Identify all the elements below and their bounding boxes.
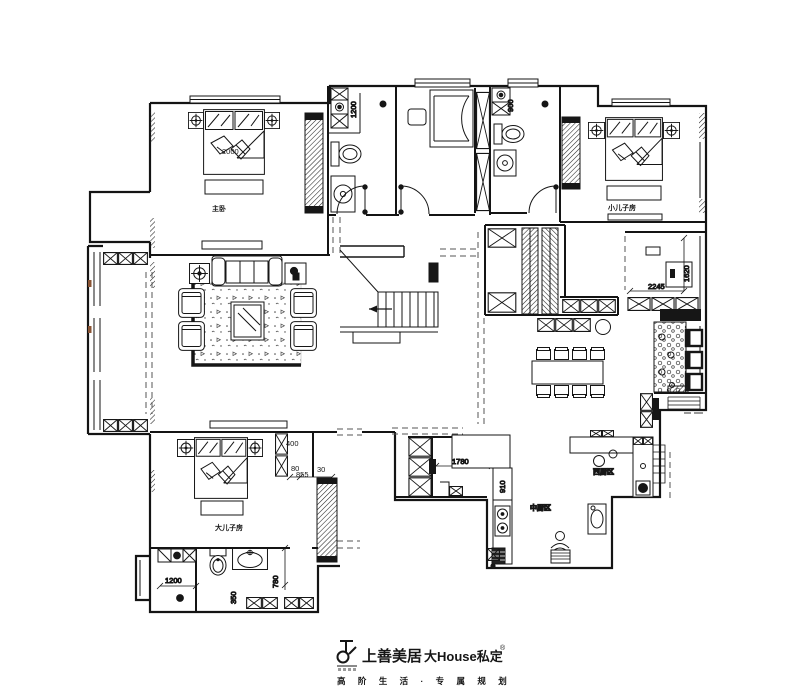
closet-column — [477, 92, 490, 148]
elder-bathroom: 1200 780 350 — [157, 545, 313, 609]
toilet — [210, 548, 226, 575]
tv-console — [202, 241, 262, 249]
bed-bench — [607, 186, 661, 200]
nightstand-lamp-icon — [247, 439, 262, 456]
armchair — [291, 289, 317, 318]
toilet — [331, 142, 361, 166]
fixture-dot — [380, 101, 386, 107]
floor-plan-page: 2000 主卧 1200 — [0, 0, 800, 700]
balcony — [104, 253, 148, 432]
stove — [495, 506, 510, 536]
dim-1620: 1620 — [682, 265, 691, 282]
dim-2245: 2245 — [648, 282, 665, 291]
staircase — [340, 246, 438, 343]
armchair — [179, 289, 205, 318]
range-hood — [492, 548, 505, 564]
bed — [606, 118, 663, 181]
registered-mark: ® — [500, 644, 506, 652]
master-bathroom: 1200 — [328, 88, 386, 214]
dim-bath: 900 — [506, 99, 515, 112]
washbasin — [233, 549, 268, 570]
nightstand-lamp-icon — [177, 439, 194, 456]
dim-855: 855 — [296, 470, 309, 479]
floor-mat — [551, 550, 570, 563]
dim-910: 910 — [498, 480, 507, 493]
wardrobe — [305, 113, 323, 213]
living-room — [179, 256, 317, 428]
second-bathroom: 900 — [492, 88, 558, 213]
dim-780: 780 — [271, 575, 280, 588]
column-circle — [596, 320, 611, 335]
room-label-kitchen-w: 西厨区 — [593, 467, 614, 476]
armchair — [179, 322, 205, 351]
brand-logo-icon — [337, 641, 357, 671]
brand-tagline: 高 阶 生 活 · 专 属 规 划 — [337, 676, 512, 686]
toilet — [494, 124, 524, 144]
floor-plan-drawing: 2000 主卧 1200 — [0, 0, 800, 700]
person-figure — [551, 532, 569, 552]
tv-console — [210, 421, 287, 428]
stair-elevator-block — [488, 228, 615, 335]
door-arc — [529, 185, 558, 213]
wardrobe — [562, 117, 580, 189]
nightstand-lamp-icon — [264, 112, 279, 128]
direction-arrow — [369, 306, 377, 313]
sofa — [212, 256, 282, 286]
armchair — [291, 322, 317, 351]
closet-column — [477, 153, 490, 210]
bed — [195, 438, 248, 499]
chinese-kitchen: 910 中厨区 — [488, 468, 606, 569]
room-label-kitchen-cn: 中厨区 — [530, 503, 551, 512]
dim-1200-elder: 1200 — [165, 576, 182, 585]
room-label-elder-son: 大儿子房 — [215, 523, 243, 532]
nightstand-lamp-icon — [663, 122, 679, 138]
coffee-table — [231, 302, 264, 340]
dim-400: 400 — [286, 439, 299, 448]
bed-bench — [201, 501, 243, 515]
washing-machine — [331, 176, 355, 212]
leisure-chairs — [686, 330, 702, 390]
washer — [494, 150, 516, 176]
dim-1780: 1780 — [452, 457, 469, 466]
cabinet-solid — [660, 309, 701, 321]
western-kitchen: 西厨区 — [570, 394, 665, 497]
brand-name: 上善美居 — [362, 647, 422, 665]
dim-bed-width: 2000 — [222, 147, 239, 156]
rail-post — [429, 263, 438, 282]
wardrobe — [317, 478, 337, 562]
right-wing: 2245 1620 — [627, 235, 703, 414]
door-arc — [399, 185, 429, 214]
island-counter — [570, 437, 633, 453]
nightstand-lamp-icon — [588, 122, 604, 138]
bed-bench — [205, 180, 263, 194]
dim-shower: 1200 — [349, 101, 358, 118]
nightstand-lamp-icon — [188, 112, 203, 128]
sink — [588, 504, 606, 534]
master-bedroom: 2000 主卧 — [188, 110, 323, 249]
floor-drain — [177, 595, 184, 602]
footer-logo: 上善美居 大House私定 ® 高 阶 生 活 · 专 属 规 划 — [337, 641, 512, 686]
dim-30: 30 — [317, 465, 325, 474]
dining-table — [532, 361, 603, 384]
pebble-decor-strip — [654, 322, 686, 392]
room-label-master: 主卧 — [212, 204, 226, 213]
younger-son-room: 小儿子房 — [562, 117, 680, 220]
tv-console — [608, 214, 662, 220]
side-table-right — [285, 263, 306, 284]
brand-suffix: 大House私定 — [424, 649, 503, 664]
dim-350: 350 — [229, 591, 238, 604]
dining-area — [532, 348, 605, 398]
master-bed — [204, 110, 265, 175]
room-label-younger-son: 小儿子房 — [607, 203, 636, 212]
desk-chair — [408, 109, 426, 125]
side-table-lamp — [190, 264, 210, 284]
